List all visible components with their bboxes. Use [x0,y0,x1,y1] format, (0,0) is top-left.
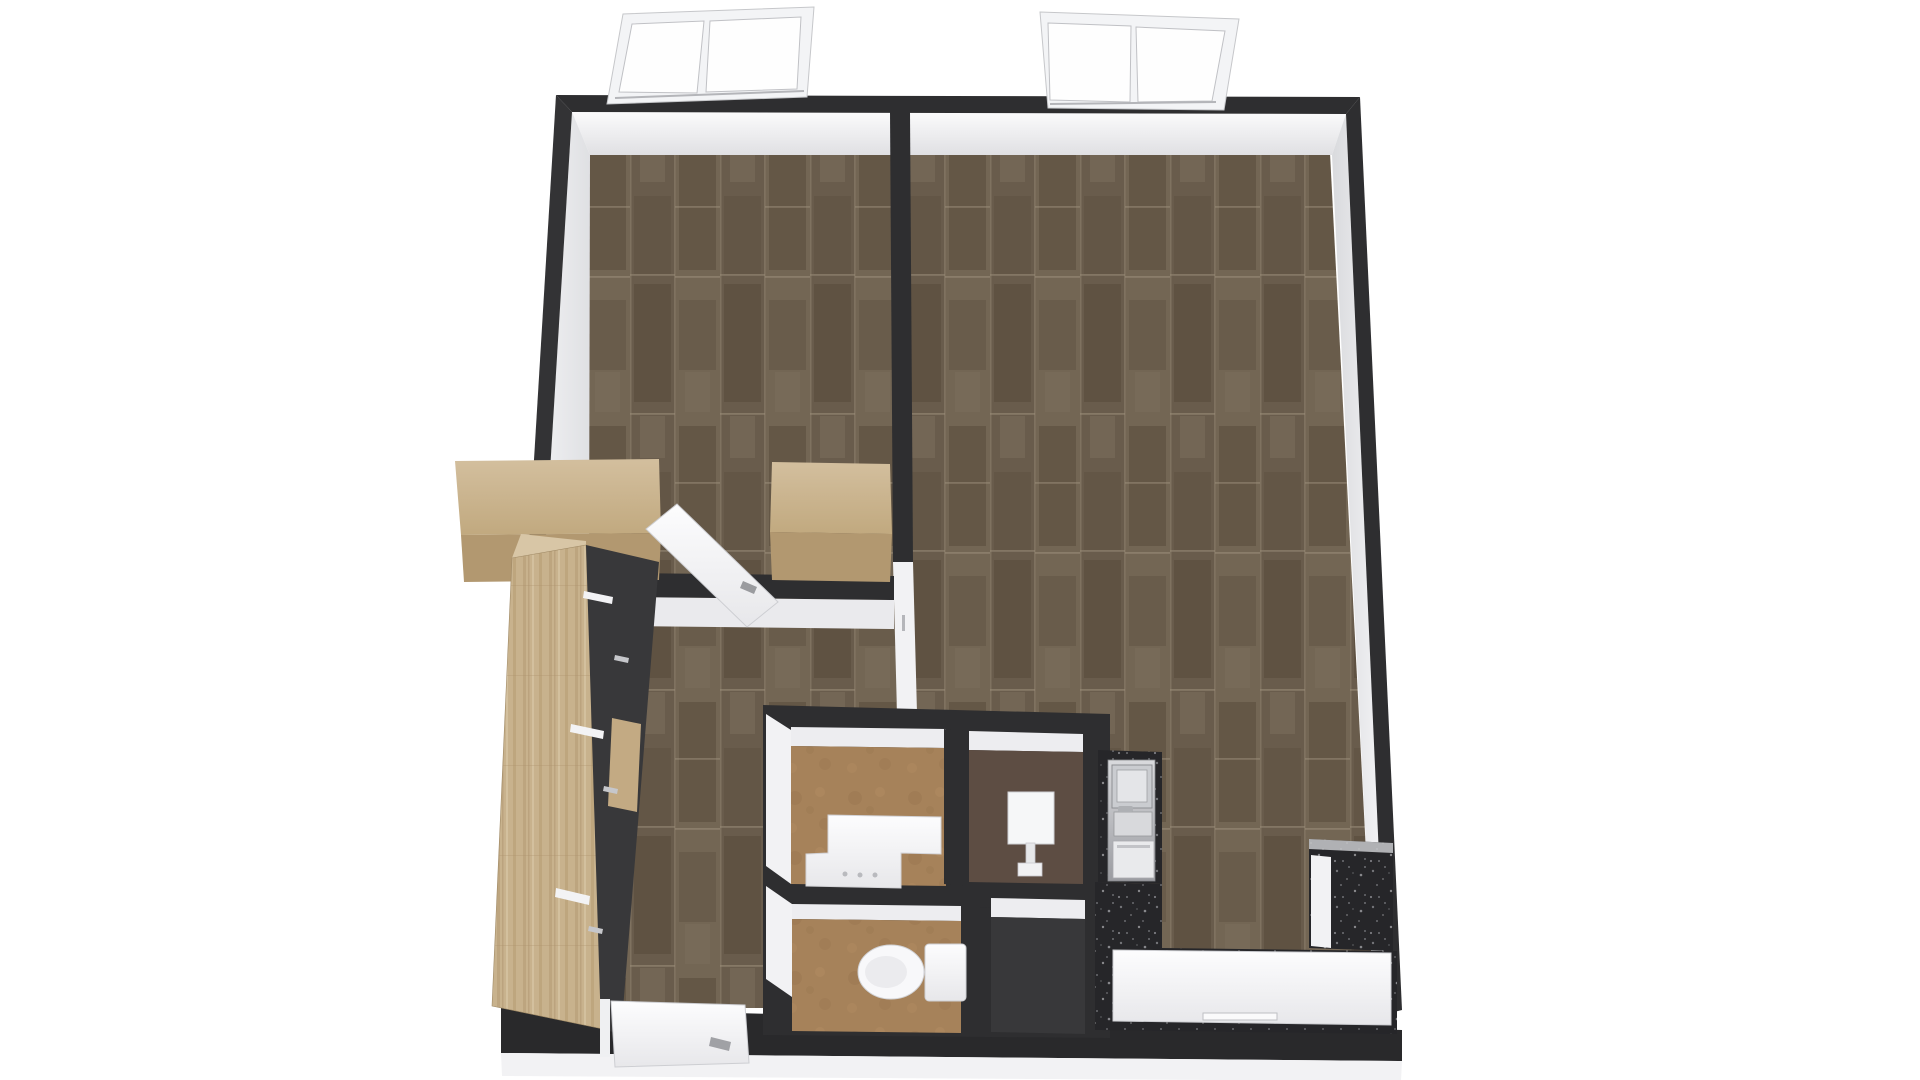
toilet-room-north-face [792,904,961,921]
entry-door-leaf [611,1001,749,1067]
cabinet-b-top [770,462,892,534]
floorplan-scene [455,7,1402,1080]
shower-room-floor [991,917,1085,1034]
wall-face-top [572,112,1346,155]
cabinet-a-top [455,459,661,535]
closet-shelf [608,718,641,812]
window-1-pane-left [619,21,704,93]
vanity-knob-2 [858,873,863,878]
floorplan-stage [0,0,1920,1080]
kitchen-counter-handle [1203,1013,1277,1020]
shower-room-north-face [991,898,1085,919]
kitchen-faucet [1118,806,1133,812]
cabinet-b-front [770,532,892,582]
divider-door-hinge [902,615,905,631]
kitchen-right-column-front [1311,855,1331,948]
wall-room-divider [890,112,913,562]
wall-vanity-basin-divider [944,729,969,886]
washbasin-stem [1026,843,1035,864]
divider-end-jamb [893,562,917,713]
toilet-tank [925,944,966,1001]
kitchen-sink [1114,812,1152,836]
floorplan-svg [0,0,1920,1080]
vanity-room-west-face [766,714,791,884]
kitchen-oven-door [1117,770,1147,802]
vanity-knob-3 [873,873,878,878]
washbasin-base [1018,863,1042,876]
vanity-knob-1 [843,872,848,877]
vanity-room-north-face [791,727,946,748]
window-1-pane-right [706,17,801,92]
washbasin-square [1008,792,1054,844]
kitchen-dishwasher-panel [1117,845,1150,848]
basin-room-north-face [969,731,1083,752]
window-2-pane-right [1136,27,1225,102]
toilet-seat [865,956,907,988]
window-2-pane-left [1048,23,1131,102]
toilet-room-west-jamb [766,886,792,997]
entry-door-frame [600,999,610,1057]
